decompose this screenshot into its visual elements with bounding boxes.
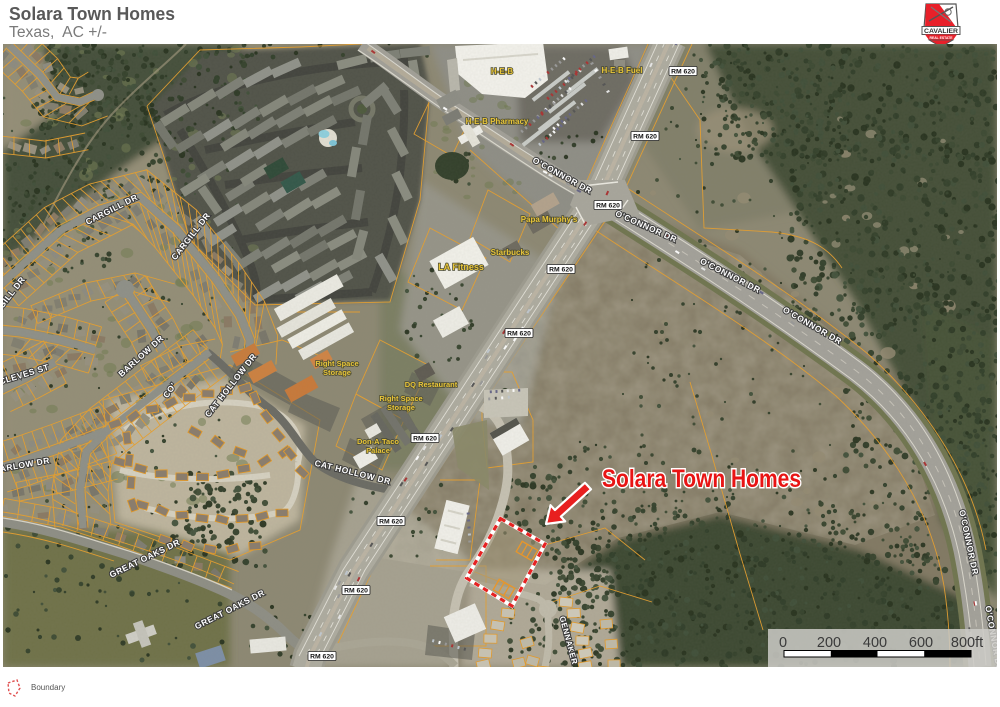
svg-text:RM 620: RM 620 (507, 330, 531, 337)
svg-text:400: 400 (863, 635, 887, 651)
svg-text:RM 620: RM 620 (671, 68, 695, 75)
svg-text:0: 0 (779, 635, 787, 651)
svg-text:Texas, AC +/-: Texas, AC +/- (9, 24, 107, 41)
svg-text:Palace: Palace (366, 446, 390, 455)
svg-text:Don-A-Taco: Don-A-Taco (357, 437, 399, 446)
svg-text:600: 600 (909, 635, 933, 651)
svg-text:200: 200 (817, 635, 841, 651)
svg-text:RM 620: RM 620 (344, 587, 368, 594)
svg-text:RM 620: RM 620 (310, 653, 334, 660)
svg-text:RM 620: RM 620 (633, 133, 657, 140)
svg-text:Right Space: Right Space (315, 359, 358, 368)
svg-text:Solara Town Homes: Solara Town Homes (602, 465, 801, 493)
svg-text:RM 620: RM 620 (413, 435, 437, 442)
svg-text:RM 620: RM 620 (596, 202, 620, 209)
svg-text:Boundary: Boundary (31, 683, 65, 692)
svg-text:RM 620: RM 620 (549, 266, 573, 273)
svg-text:Storage: Storage (323, 368, 351, 377)
svg-text:Papa Murphy's: Papa Murphy's (521, 215, 578, 224)
svg-text:800ft: 800ft (951, 635, 983, 651)
svg-text:Right Space: Right Space (379, 394, 422, 403)
svg-text:RM 620: RM 620 (379, 518, 403, 525)
svg-text:H-E-B Fuel: H-E-B Fuel (602, 66, 643, 75)
svg-text:Storage: Storage (387, 403, 415, 412)
svg-text:LA Fitness: LA Fitness (438, 262, 484, 272)
svg-text:Starbucks: Starbucks (491, 248, 530, 257)
svg-text:REAL ESTATE: REAL ESTATE (930, 36, 954, 40)
svg-text:H-E-B Pharmacy: H-E-B Pharmacy (466, 117, 529, 126)
svg-text:Solara Town Homes: Solara Town Homes (9, 4, 175, 24)
svg-text:CAVALIER: CAVALIER (924, 28, 959, 35)
svg-text:H-E-B: H-E-B (491, 67, 513, 76)
svg-text:DQ Restaurant: DQ Restaurant (405, 380, 458, 389)
